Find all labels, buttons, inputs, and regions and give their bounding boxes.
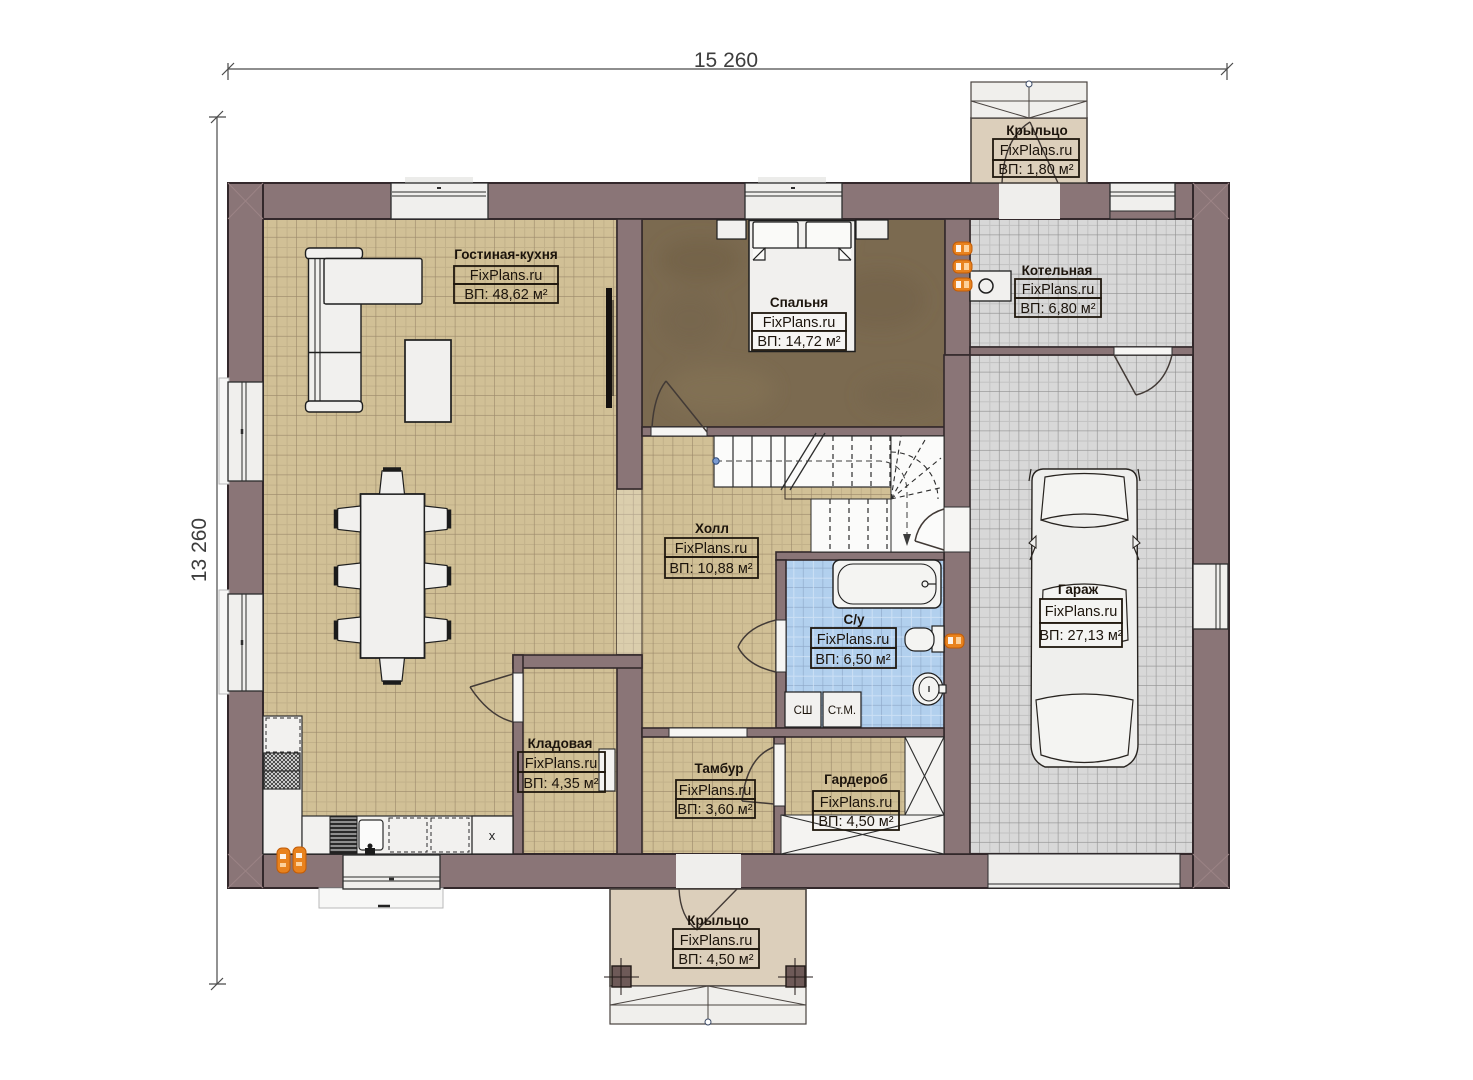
svg-text:FixPlans.ru: FixPlans.ru xyxy=(675,541,748,557)
svg-text:FixPlans.ru: FixPlans.ru xyxy=(680,933,753,949)
svg-text:ВП: 48,62 м²: ВП: 48,62 м² xyxy=(464,287,547,303)
svg-text:ВП: 3,60 м²: ВП: 3,60 м² xyxy=(677,802,752,818)
svg-text:Крыльцо: Крыльцо xyxy=(687,913,748,928)
svg-text:x: x xyxy=(489,828,496,843)
svg-text:FixPlans.ru: FixPlans.ru xyxy=(679,783,752,799)
svg-text:СШ: СШ xyxy=(794,705,813,717)
svg-text:FixPlans.ru: FixPlans.ru xyxy=(1000,143,1073,159)
svg-text:Ст.М.: Ст.М. xyxy=(828,705,856,717)
svg-text:ВП: 4,35 м²: ВП: 4,35 м² xyxy=(523,776,598,792)
svg-text:FixPlans.ru: FixPlans.ru xyxy=(525,756,598,772)
svg-text:FixPlans.ru: FixPlans.ru xyxy=(820,795,893,811)
svg-text:Крыльцо: Крыльцо xyxy=(1006,123,1067,138)
svg-text:ВП: 6,50 м²: ВП: 6,50 м² xyxy=(815,652,890,668)
svg-text:Кладовая: Кладовая xyxy=(528,736,593,751)
svg-text:ВП: 1,80 м²: ВП: 1,80 м² xyxy=(998,162,1073,178)
svg-text:FixPlans.ru: FixPlans.ru xyxy=(817,632,890,648)
svg-text:ВП: 27,13 м²: ВП: 27,13 м² xyxy=(1039,628,1122,644)
svg-text:ВП: 4,50 м²: ВП: 4,50 м² xyxy=(818,814,893,830)
svg-text:FixPlans.ru: FixPlans.ru xyxy=(1022,282,1095,298)
svg-text:Гараж: Гараж xyxy=(1058,582,1099,597)
svg-text:13 260: 13 260 xyxy=(188,518,211,582)
svg-text:ВП: 6,80 м²: ВП: 6,80 м² xyxy=(1020,301,1095,317)
svg-text:Тамбур: Тамбур xyxy=(695,761,744,776)
svg-text:Гардероб: Гардероб xyxy=(824,772,888,787)
svg-text:Котельная: Котельная xyxy=(1022,263,1093,278)
svg-text:FixPlans.ru: FixPlans.ru xyxy=(1045,604,1118,620)
svg-text:С/у: С/у xyxy=(843,612,865,627)
svg-text:ВП: 14,72 м²: ВП: 14,72 м² xyxy=(757,334,840,350)
svg-text:FixPlans.ru: FixPlans.ru xyxy=(470,268,543,284)
svg-text:15 260: 15 260 xyxy=(694,49,758,72)
svg-text:FixPlans.ru: FixPlans.ru xyxy=(763,315,836,331)
svg-text:Холл: Холл xyxy=(695,521,729,536)
svg-text:ВП: 4,50 м²: ВП: 4,50 м² xyxy=(678,952,753,968)
svg-text:Гостиная-кухня: Гостиная-кухня xyxy=(454,247,557,262)
svg-text:ВП: 10,88 м²: ВП: 10,88 м² xyxy=(669,561,752,577)
svg-text:Спальня: Спальня xyxy=(770,295,828,310)
